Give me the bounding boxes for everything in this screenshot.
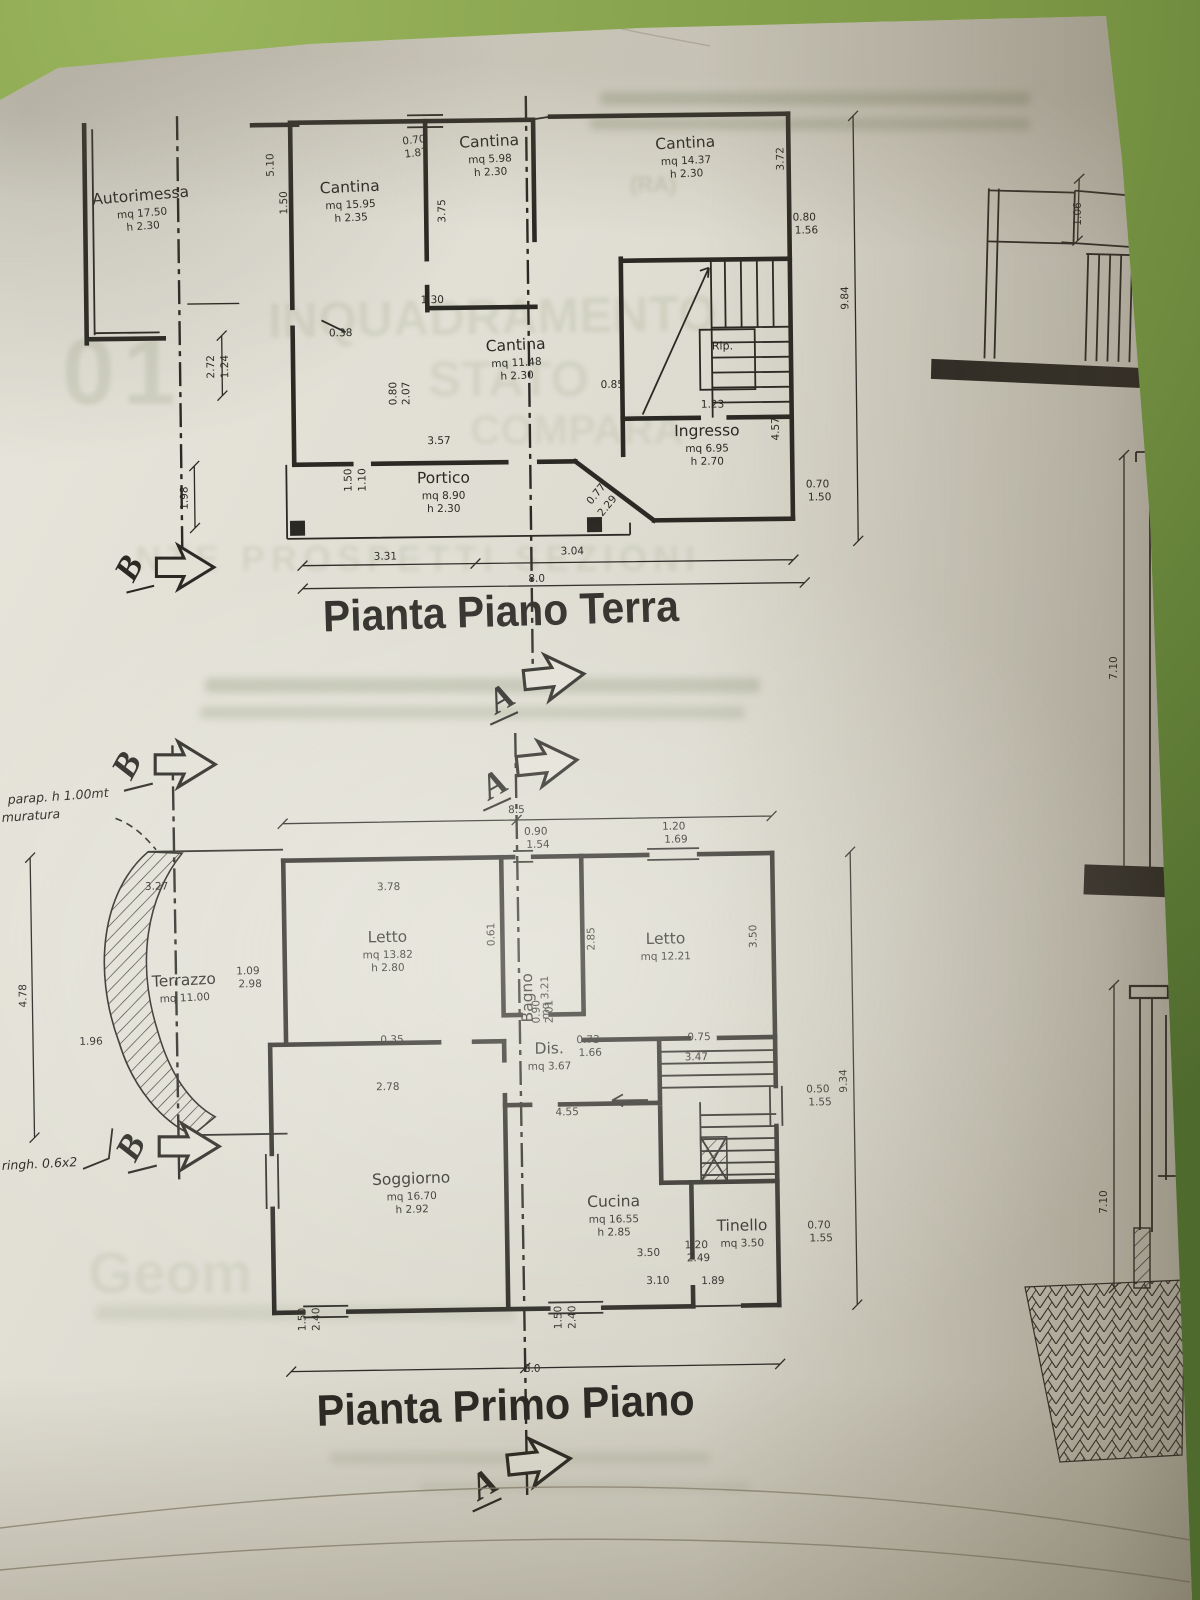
room-label-portico: Porticomq 8.90h 2.30	[417, 469, 471, 516]
dimension-text: 2.85	[585, 927, 597, 951]
room-name: Letto	[368, 928, 408, 947]
room-height: h 2.30	[427, 503, 461, 515]
dimension-text: 3.50	[747, 925, 759, 949]
room-area: mq 3.67	[528, 1060, 572, 1073]
first-staircase	[611, 1050, 777, 1184]
dimension-text: 3.50	[637, 1247, 661, 1259]
dimension-text: 3.78	[377, 881, 401, 893]
dimension-text: 3.75	[436, 199, 448, 223]
terrace-annotation-bottom: ringh. 0.6x2	[1, 1154, 77, 1173]
room-name: Portico	[417, 469, 470, 488]
dimension-text: 7.10	[1108, 656, 1120, 679]
terrace-annotation-line1: parap. h 1.00mt	[6, 785, 110, 807]
dimension-text: 4.57	[770, 417, 782, 441]
marker-letter-b: B	[106, 549, 151, 588]
room-area: mq 12.21	[641, 950, 691, 963]
dimension-text: 3.47	[685, 1051, 709, 1063]
room-name: Dis.	[534, 1039, 564, 1057]
section-marker-a-first: A	[469, 737, 581, 811]
dimension-text: 0.75	[687, 1031, 711, 1043]
dimension-text: 9.34	[838, 1069, 850, 1093]
marker-letter-b: B	[102, 745, 149, 786]
room-area: mq 13.82	[362, 949, 412, 962]
dimension-text: 1.56	[795, 224, 819, 236]
dimension-text: 0.90	[524, 826, 548, 838]
room-label-soggiorno: Soggiornomq 16.70h 2.92	[372, 1168, 452, 1217]
dimension-text: 1.98	[179, 486, 191, 510]
dimension-text: 1.50	[342, 468, 354, 492]
dimension-text: 0.90	[530, 1000, 542, 1024]
dimension-text: 2.72	[205, 355, 217, 379]
room-name: Cantina	[459, 131, 520, 152]
dimension-text: 1.69	[664, 833, 688, 845]
room-name: Cantina	[319, 177, 380, 198]
dimension-text: 0.85	[601, 379, 625, 391]
dimension-text: 1.50	[278, 191, 290, 215]
dimension-text: 3.10	[646, 1275, 670, 1287]
room-area: mq 16.55	[589, 1213, 639, 1226]
dimension-text: 3.72	[774, 147, 786, 171]
dimension-text: 2.40	[310, 1307, 322, 1331]
section-sketch-top	[931, 170, 1173, 389]
section-arrow-icon	[156, 545, 214, 589]
room-area: mq 3.50	[720, 1237, 764, 1250]
dimension-text: 0.35	[380, 1034, 404, 1046]
ground-bar	[1084, 864, 1181, 897]
first-floor-plan: Terrazzomq 11.00Lettomq 13.82h 2.80Bagno…	[13, 728, 865, 1505]
dimension-text: 0.70	[402, 133, 427, 148]
room-name: Autorimessa	[92, 183, 190, 209]
room-name: Tinello	[715, 1216, 767, 1235]
dimension-text: 1.23	[701, 399, 725, 411]
dimension-text: 4.78	[17, 984, 29, 1008]
dimension-text: 1.54	[526, 838, 550, 850]
dimension-text: 5.10	[264, 153, 276, 177]
ground-room-labels: Autorimessamq 17.50h 2.30Cantinamq 15.95…	[91, 128, 741, 519]
room-area: mq 14.37	[661, 154, 712, 168]
room-height: h 2.30	[474, 166, 508, 180]
room-height: h 2.30	[500, 369, 534, 383]
dimension-text: 0.73	[576, 1034, 600, 1046]
ground-hatch	[1025, 1280, 1185, 1462]
dimension-text: 8.0	[528, 573, 545, 585]
room-height: h 2.30	[126, 219, 160, 234]
dimension-text: 1.09	[236, 965, 260, 977]
marker-letter-b: B	[106, 1127, 153, 1168]
room-label-terrazzo: Terrazzomq 11.00	[150, 970, 217, 1006]
section-arrow-icon	[155, 742, 215, 788]
room-name: Terrazzo	[150, 970, 216, 991]
dimension-text: 1.50	[552, 1306, 564, 1330]
dimension-text: 1.55	[808, 1096, 832, 1108]
room-area: mq 8.90	[422, 490, 466, 503]
dimension-text: 3.57	[427, 435, 451, 447]
room-area: mq 5.98	[468, 152, 512, 166]
room-name: Rip.	[712, 339, 733, 352]
dimension-text: 1.55	[809, 1232, 833, 1244]
dimension-text: 1.20	[662, 820, 686, 832]
marker-letter-a: A	[479, 675, 522, 723]
dimension-text: 1.66	[578, 1047, 602, 1059]
section-arrow-icon	[515, 737, 579, 789]
dimension-text: 0.80	[387, 382, 399, 406]
terrace-annotation-line2: muratura	[1, 806, 60, 825]
section-marker-a-bottom: A	[458, 1435, 574, 1512]
dimension-text: 0.80	[793, 211, 817, 223]
dimension-text: 1.06	[1072, 202, 1084, 226]
dimension-text: 1.30	[420, 294, 444, 306]
dimension-text: 3.27	[145, 880, 169, 892]
dimension-text: 2.78	[376, 1081, 400, 1093]
first-floor-title: Pianta Primo Piano	[316, 1376, 695, 1436]
room-height: h 2.30	[670, 167, 704, 181]
dimension-text: 1.89	[701, 1275, 725, 1287]
dimension-text: 2.98	[238, 978, 262, 990]
dimension-text: 2.01	[543, 1000, 555, 1024]
room-name: Cucina	[587, 1192, 640, 1211]
dimension-text: 0.70	[806, 478, 830, 490]
room-height: h 2.92	[395, 1203, 429, 1216]
marker-letter-a: A	[472, 761, 515, 809]
dimension-text: 1.50	[296, 1308, 308, 1332]
section-sketches: 1.067.107.10	[931, 170, 1190, 1462]
dimension-text: 1.50	[808, 491, 832, 503]
room-label-cantina-right: Cantinamq 14.37h 2.30	[655, 133, 717, 182]
ground-staircase	[641, 259, 792, 419]
room-name: Soggiorno	[372, 1168, 451, 1189]
room-area: mq 17.50	[117, 206, 168, 222]
dimension-text: 0.38	[329, 327, 353, 339]
dimension-text: 2.07	[400, 382, 412, 406]
room-label-dis: Dis.mq 3.67	[527, 1039, 571, 1073]
room-height: h 2.70	[690, 456, 724, 468]
room-label-tinello: Tinellomq 3.50	[715, 1216, 767, 1250]
room-area: mq 15.95	[325, 198, 376, 212]
section-arrow-icon	[159, 1124, 219, 1170]
ground-bar	[931, 359, 1169, 389]
dimension-text: 8.0	[524, 1363, 541, 1375]
marker-letter-a: A	[461, 1461, 505, 1510]
room-area: mq 11.48	[491, 356, 542, 370]
room-label-autorimessa: Autorimessamq 17.50h 2.30	[92, 183, 192, 237]
room-height: h 2.80	[371, 962, 405, 975]
ground-floor-title: Pianta Piano Terra	[322, 582, 680, 642]
section-marker-b-ground: B	[106, 545, 213, 592]
room-name: Cantina	[655, 133, 716, 154]
dimension-text: 7.10	[1098, 1190, 1110, 1213]
photographed-plan-sheet: 01 INQUADRAMENTO STATO COMPARA NTE PROSP…	[0, 0, 1200, 1600]
dimension-text: 0.70	[807, 1219, 831, 1231]
floor-plan-drawing: Autorimessamq 17.50h 2.30Cantinamq 15.95…	[0, 0, 1200, 1600]
dimension-text: 1.10	[356, 468, 368, 492]
room-height: h 2.85	[597, 1226, 631, 1239]
dimension-text: 4.55	[555, 1106, 579, 1118]
room-height: h 2.35	[334, 211, 368, 225]
room-area: mq 6.95	[685, 442, 729, 455]
room-label-cucina: Cucinamq 16.55h 2.85	[587, 1192, 641, 1239]
dimension-text: 2.49	[687, 1252, 711, 1264]
dimension-text: 1.24	[219, 355, 231, 379]
room-area: mq 16.70	[386, 1190, 437, 1204]
dimension-text: 9.84	[839, 286, 851, 310]
section-sketch-bottom	[1025, 980, 1190, 1462]
dimension-text: 0.50	[806, 1083, 830, 1095]
section-marker-b-first: B	[102, 742, 215, 791]
dimension-text: 1.20	[685, 1239, 709, 1251]
room-label-letto-left: Lettomq 13.82h 2.80	[362, 928, 413, 975]
room-name: Cantina	[485, 335, 546, 356]
section-sketch-middle	[1084, 450, 1181, 898]
ground-floor-plan: Autorimessamq 17.50h 2.30Cantinamq 15.95…	[84, 92, 865, 671]
section-arrow-icon	[506, 1435, 573, 1489]
section-marker-b-bottom: B	[106, 1124, 219, 1173]
room-name: Ingresso	[674, 421, 740, 440]
dimension-text: 3.04	[561, 545, 585, 557]
dimension-text: 0.61	[485, 923, 497, 947]
room-label-cantina-left: Cantinamq 15.95h 2.35	[319, 177, 381, 226]
leader-line	[116, 818, 156, 851]
dimension-text: 1.96	[79, 1036, 103, 1048]
paper-sheet: 01 INQUADRAMENTO STATO COMPARA NTE PROSP…	[0, 0, 1200, 1600]
room-label-rip: Rip.	[712, 339, 733, 352]
room-label-cantina-top: Cantinamq 5.98h 2.30	[459, 131, 521, 180]
dimension-text: 8.5	[508, 804, 525, 816]
room-label-cantina-center: Cantinamq 11.48h 2.30	[485, 335, 547, 384]
room-label-ingresso: Ingressomq 6.95h 2.70	[674, 421, 740, 468]
dimension-text: 2.40	[566, 1305, 578, 1329]
room-label-letto-right: Lettomq 12.21	[640, 929, 691, 963]
room-name: Letto	[646, 929, 686, 948]
room-area: mq 11.00	[159, 991, 210, 1006]
railing-hatch	[1083, 254, 1167, 363]
dimension-text: 3.31	[374, 551, 398, 563]
